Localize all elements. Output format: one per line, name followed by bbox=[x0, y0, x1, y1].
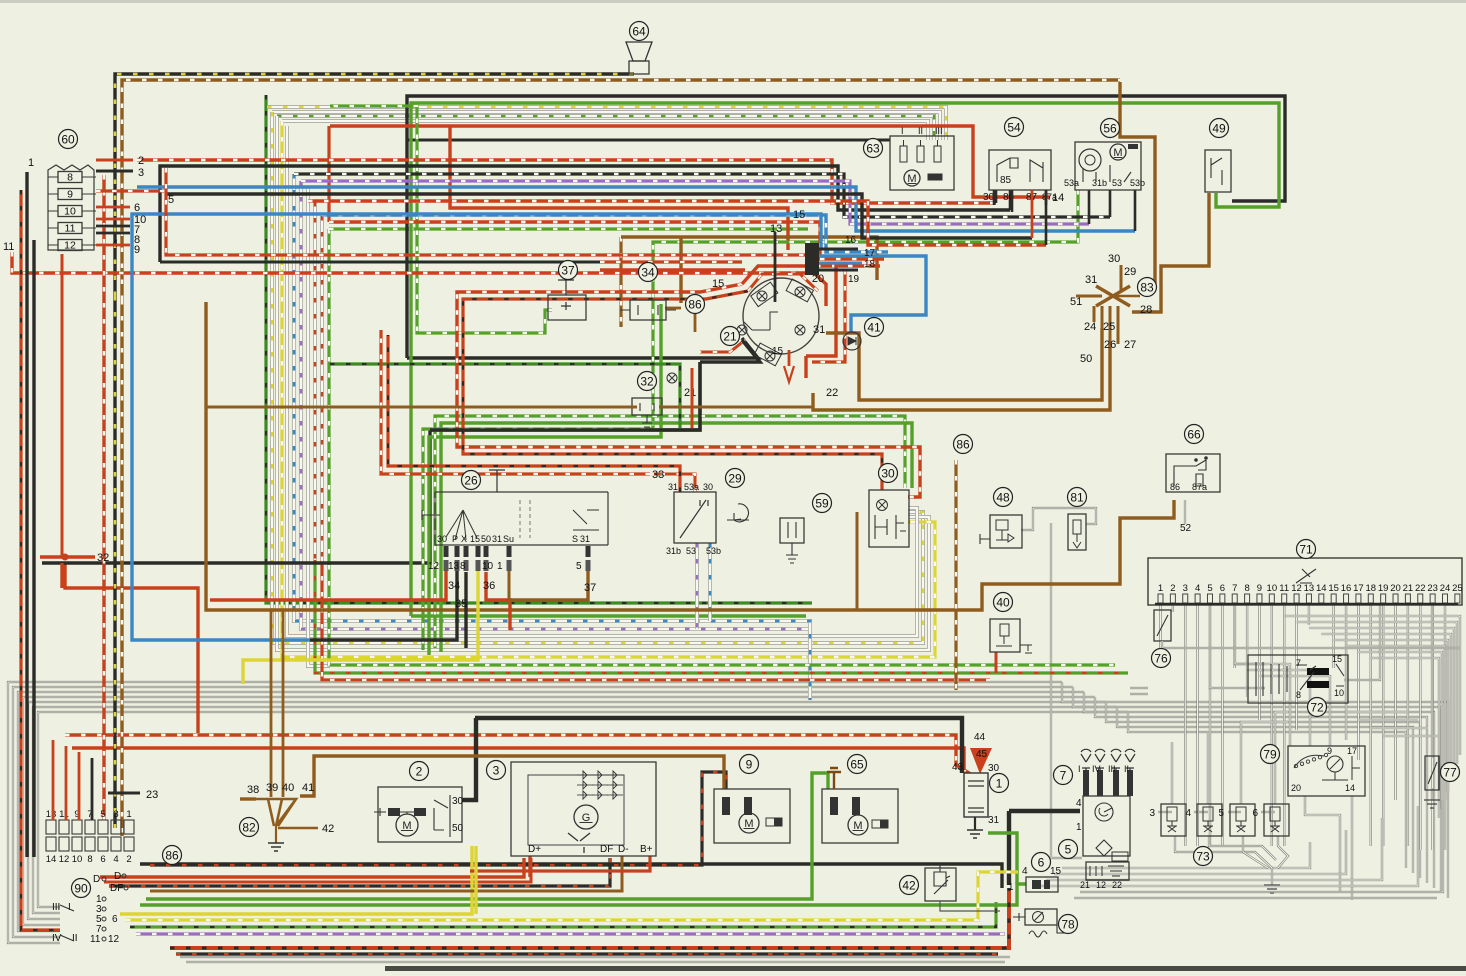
svg-text:86: 86 bbox=[956, 437, 970, 451]
svg-text:3: 3 bbox=[113, 809, 118, 820]
svg-text:12: 12 bbox=[428, 561, 440, 572]
svg-text:73: 73 bbox=[1196, 849, 1210, 863]
svg-text:52: 52 bbox=[1180, 523, 1192, 534]
svg-text:1: 1 bbox=[1158, 583, 1163, 594]
svg-text:8: 8 bbox=[87, 854, 92, 865]
svg-text:P: P bbox=[452, 534, 458, 544]
svg-text:53b: 53b bbox=[1130, 178, 1145, 188]
svg-text:5: 5 bbox=[576, 561, 582, 572]
svg-text:8: 8 bbox=[1296, 690, 1301, 700]
svg-text:24: 24 bbox=[1084, 321, 1096, 333]
svg-text:12: 12 bbox=[108, 934, 120, 945]
svg-text:11: 11 bbox=[1279, 583, 1289, 594]
svg-text:1: 1 bbox=[126, 809, 131, 820]
svg-text:15: 15 bbox=[772, 346, 784, 357]
svg-text:12: 12 bbox=[59, 854, 70, 865]
svg-text:5: 5 bbox=[1065, 842, 1072, 856]
svg-text:D: D bbox=[114, 871, 121, 882]
svg-text:9: 9 bbox=[134, 244, 140, 256]
svg-text:S: S bbox=[572, 534, 578, 544]
svg-text:53a: 53a bbox=[684, 482, 699, 492]
svg-text:63: 63 bbox=[866, 141, 880, 155]
svg-text:7: 7 bbox=[1060, 768, 1067, 782]
svg-text:5: 5 bbox=[100, 809, 105, 820]
svg-text:II: II bbox=[72, 933, 78, 944]
svg-text:18: 18 bbox=[1366, 583, 1377, 594]
svg-text:71: 71 bbox=[1299, 542, 1313, 556]
svg-text:37: 37 bbox=[584, 582, 596, 594]
svg-text:23: 23 bbox=[146, 789, 158, 801]
svg-text:83: 83 bbox=[1140, 280, 1154, 294]
svg-text:13: 13 bbox=[46, 809, 57, 820]
svg-text:12: 12 bbox=[1096, 880, 1106, 890]
svg-text:17: 17 bbox=[1353, 583, 1364, 594]
svg-text:53: 53 bbox=[686, 546, 696, 556]
svg-text:30: 30 bbox=[988, 763, 1000, 774]
svg-text:4: 4 bbox=[1076, 798, 1082, 809]
svg-text:2: 2 bbox=[126, 854, 131, 865]
svg-text:42: 42 bbox=[902, 878, 916, 892]
svg-text:II: II bbox=[918, 126, 923, 136]
svg-text:4: 4 bbox=[1185, 808, 1191, 819]
svg-text:49: 49 bbox=[1212, 121, 1226, 135]
svg-text:39: 39 bbox=[266, 782, 278, 794]
svg-text:17: 17 bbox=[1347, 746, 1357, 756]
svg-text:32: 32 bbox=[640, 374, 654, 388]
svg-text:54: 54 bbox=[1007, 120, 1021, 134]
svg-text:41: 41 bbox=[867, 320, 881, 334]
svg-text:25: 25 bbox=[1452, 583, 1463, 594]
svg-text:13: 13 bbox=[1304, 583, 1315, 594]
svg-text:X: X bbox=[461, 534, 467, 544]
svg-text:86: 86 bbox=[688, 297, 702, 311]
svg-text:1: 1 bbox=[1076, 822, 1082, 833]
svg-text:1: 1 bbox=[996, 776, 1003, 790]
svg-text:16: 16 bbox=[1341, 583, 1352, 594]
svg-text:16: 16 bbox=[845, 235, 857, 246]
svg-text:51: 51 bbox=[1070, 296, 1082, 308]
svg-text:6: 6 bbox=[134, 202, 140, 214]
svg-text:19: 19 bbox=[1378, 583, 1389, 594]
svg-text:21: 21 bbox=[723, 329, 737, 343]
svg-text:15: 15 bbox=[712, 278, 724, 290]
svg-text:10: 10 bbox=[72, 854, 83, 865]
svg-text:III: III bbox=[52, 902, 60, 913]
svg-text:II: II bbox=[1124, 764, 1129, 774]
svg-text:22: 22 bbox=[1112, 880, 1122, 890]
svg-text:4: 4 bbox=[1022, 866, 1028, 877]
svg-text:3: 3 bbox=[138, 167, 144, 179]
svg-text:26: 26 bbox=[464, 473, 478, 487]
svg-text:IV: IV bbox=[1092, 764, 1101, 774]
svg-text:64: 64 bbox=[632, 24, 646, 38]
svg-text:DF: DF bbox=[600, 844, 613, 855]
svg-text:85: 85 bbox=[1000, 175, 1012, 186]
svg-text:5: 5 bbox=[1207, 583, 1212, 594]
svg-text:9: 9 bbox=[67, 189, 73, 201]
svg-text:20: 20 bbox=[1390, 583, 1401, 594]
svg-text:43: 43 bbox=[952, 762, 964, 773]
svg-text:I: I bbox=[901, 126, 904, 136]
svg-text:21: 21 bbox=[1403, 583, 1414, 594]
svg-text:19: 19 bbox=[848, 274, 860, 285]
svg-text:82: 82 bbox=[242, 820, 256, 834]
svg-text:78: 78 bbox=[1061, 917, 1075, 931]
svg-text:45: 45 bbox=[976, 749, 988, 760]
svg-text:60: 60 bbox=[61, 132, 75, 146]
svg-text:DF: DF bbox=[110, 883, 123, 894]
svg-text:9: 9 bbox=[1257, 583, 1262, 594]
svg-text:8: 8 bbox=[1244, 583, 1249, 594]
svg-text:31: 31 bbox=[492, 534, 502, 544]
svg-text:Su: Su bbox=[503, 534, 514, 544]
svg-text:30: 30 bbox=[452, 796, 464, 807]
svg-text:59: 59 bbox=[815, 496, 829, 510]
svg-text:81: 81 bbox=[1070, 490, 1084, 504]
svg-text:21: 21 bbox=[1080, 880, 1090, 890]
svg-text:11: 11 bbox=[90, 934, 101, 945]
svg-text:11: 11 bbox=[65, 223, 76, 235]
svg-text:31b: 31b bbox=[1092, 178, 1107, 188]
svg-text:31: 31 bbox=[580, 534, 590, 544]
svg-text:15: 15 bbox=[1332, 654, 1342, 664]
svg-text:40: 40 bbox=[282, 782, 294, 794]
svg-text:9: 9 bbox=[1327, 746, 1332, 756]
svg-text:8: 8 bbox=[460, 561, 466, 572]
svg-text:D: D bbox=[93, 874, 100, 885]
svg-text:22: 22 bbox=[826, 387, 838, 399]
svg-text:34: 34 bbox=[448, 580, 460, 592]
svg-text:31: 31 bbox=[988, 815, 1000, 826]
svg-text:18: 18 bbox=[864, 259, 876, 270]
svg-text:34: 34 bbox=[641, 265, 655, 279]
svg-text:6: 6 bbox=[1252, 808, 1258, 819]
svg-text:87a: 87a bbox=[1192, 482, 1207, 492]
svg-text:III: III bbox=[1108, 764, 1116, 774]
svg-text:12: 12 bbox=[64, 240, 76, 252]
svg-text:15: 15 bbox=[470, 534, 480, 544]
svg-text:6: 6 bbox=[1038, 855, 1045, 869]
svg-text:D+: D+ bbox=[528, 844, 541, 855]
svg-text:86: 86 bbox=[1170, 482, 1180, 492]
svg-text:14: 14 bbox=[1345, 783, 1355, 793]
svg-text:23: 23 bbox=[1427, 583, 1438, 594]
svg-text:66: 66 bbox=[1187, 427, 1201, 441]
svg-text:36: 36 bbox=[483, 580, 495, 592]
svg-text:10: 10 bbox=[1334, 688, 1344, 698]
svg-text:5: 5 bbox=[1218, 808, 1224, 819]
svg-text:3: 3 bbox=[1149, 808, 1155, 819]
svg-text:25: 25 bbox=[1103, 321, 1115, 333]
svg-text:21: 21 bbox=[684, 387, 696, 399]
svg-text:77: 77 bbox=[1443, 765, 1457, 779]
svg-text:26: 26 bbox=[1104, 339, 1116, 351]
svg-text:50: 50 bbox=[481, 534, 491, 544]
svg-text:10: 10 bbox=[64, 206, 76, 218]
svg-text:30: 30 bbox=[437, 534, 447, 544]
svg-text:6: 6 bbox=[1220, 583, 1225, 594]
svg-text:6: 6 bbox=[112, 914, 118, 925]
svg-text:15: 15 bbox=[1328, 583, 1339, 594]
svg-text:30: 30 bbox=[881, 466, 895, 480]
svg-text:29: 29 bbox=[1124, 266, 1136, 278]
svg-text:3: 3 bbox=[493, 763, 500, 777]
svg-text:32: 32 bbox=[97, 552, 109, 564]
svg-text:1: 1 bbox=[28, 157, 34, 169]
svg-text:8: 8 bbox=[67, 172, 73, 184]
svg-text:35: 35 bbox=[455, 598, 467, 610]
svg-text:I: I bbox=[68, 902, 71, 913]
svg-text:31: 31 bbox=[668, 482, 678, 492]
svg-text:17: 17 bbox=[864, 248, 876, 259]
svg-text:76: 76 bbox=[1154, 651, 1168, 665]
svg-text:15: 15 bbox=[1050, 866, 1062, 877]
svg-text:33: 33 bbox=[652, 469, 664, 481]
svg-text:13: 13 bbox=[448, 561, 460, 572]
svg-text:III: III bbox=[935, 126, 943, 136]
svg-text:10: 10 bbox=[482, 561, 494, 572]
svg-text:6: 6 bbox=[100, 854, 105, 865]
svg-text:2: 2 bbox=[1170, 583, 1175, 594]
svg-text:11: 11 bbox=[3, 241, 14, 253]
svg-text:28: 28 bbox=[1140, 304, 1152, 316]
svg-text:22: 22 bbox=[1415, 583, 1426, 594]
svg-text:30: 30 bbox=[703, 482, 713, 492]
svg-text:53: 53 bbox=[1112, 178, 1122, 188]
svg-text:40: 40 bbox=[996, 595, 1010, 609]
svg-text:37: 37 bbox=[561, 263, 575, 277]
svg-text:41: 41 bbox=[302, 782, 314, 794]
svg-text:56: 56 bbox=[1103, 121, 1117, 135]
svg-text:50: 50 bbox=[1080, 353, 1092, 365]
svg-text:20: 20 bbox=[1291, 783, 1301, 793]
svg-text:14: 14 bbox=[46, 854, 57, 865]
svg-text:27: 27 bbox=[1124, 339, 1136, 351]
svg-text:30: 30 bbox=[1108, 253, 1120, 265]
svg-text:42: 42 bbox=[322, 823, 334, 835]
svg-text:53a: 53a bbox=[1064, 178, 1079, 188]
svg-text:I: I bbox=[1078, 764, 1081, 774]
svg-text:31: 31 bbox=[1085, 274, 1097, 286]
svg-text:14: 14 bbox=[1316, 583, 1327, 594]
svg-text:9: 9 bbox=[746, 757, 753, 771]
svg-text:3: 3 bbox=[1183, 583, 1188, 594]
svg-text:11: 11 bbox=[59, 809, 69, 820]
svg-text:50: 50 bbox=[452, 823, 464, 834]
svg-text:24: 24 bbox=[1440, 583, 1451, 594]
svg-text:44: 44 bbox=[974, 732, 986, 743]
svg-text:10: 10 bbox=[1267, 583, 1278, 594]
svg-text:87a: 87a bbox=[1042, 192, 1057, 202]
svg-text:72: 72 bbox=[1310, 700, 1324, 714]
svg-text:38: 38 bbox=[247, 784, 259, 796]
svg-text:7: 7 bbox=[1232, 583, 1237, 594]
svg-text:1: 1 bbox=[1008, 882, 1014, 893]
svg-text:1: 1 bbox=[497, 561, 503, 572]
svg-text:D-: D- bbox=[618, 844, 629, 855]
svg-text:29: 29 bbox=[728, 471, 742, 485]
svg-text:86: 86 bbox=[165, 848, 179, 862]
svg-text:53b: 53b bbox=[706, 546, 721, 556]
svg-text:4: 4 bbox=[113, 854, 118, 865]
svg-text:15: 15 bbox=[793, 209, 805, 221]
svg-text:31: 31 bbox=[813, 324, 825, 336]
svg-text:79: 79 bbox=[1263, 747, 1277, 761]
svg-text:12: 12 bbox=[1291, 583, 1302, 594]
svg-text:2: 2 bbox=[416, 764, 423, 778]
svg-text:90: 90 bbox=[74, 881, 88, 895]
svg-text:B+: B+ bbox=[640, 844, 653, 855]
svg-text:48: 48 bbox=[996, 490, 1010, 504]
svg-text:65: 65 bbox=[850, 757, 864, 771]
svg-text:31b: 31b bbox=[666, 546, 681, 556]
svg-text:7: 7 bbox=[1296, 658, 1301, 668]
svg-text:5: 5 bbox=[168, 194, 174, 206]
svg-text:4: 4 bbox=[1195, 583, 1200, 594]
svg-text:2: 2 bbox=[138, 155, 144, 167]
